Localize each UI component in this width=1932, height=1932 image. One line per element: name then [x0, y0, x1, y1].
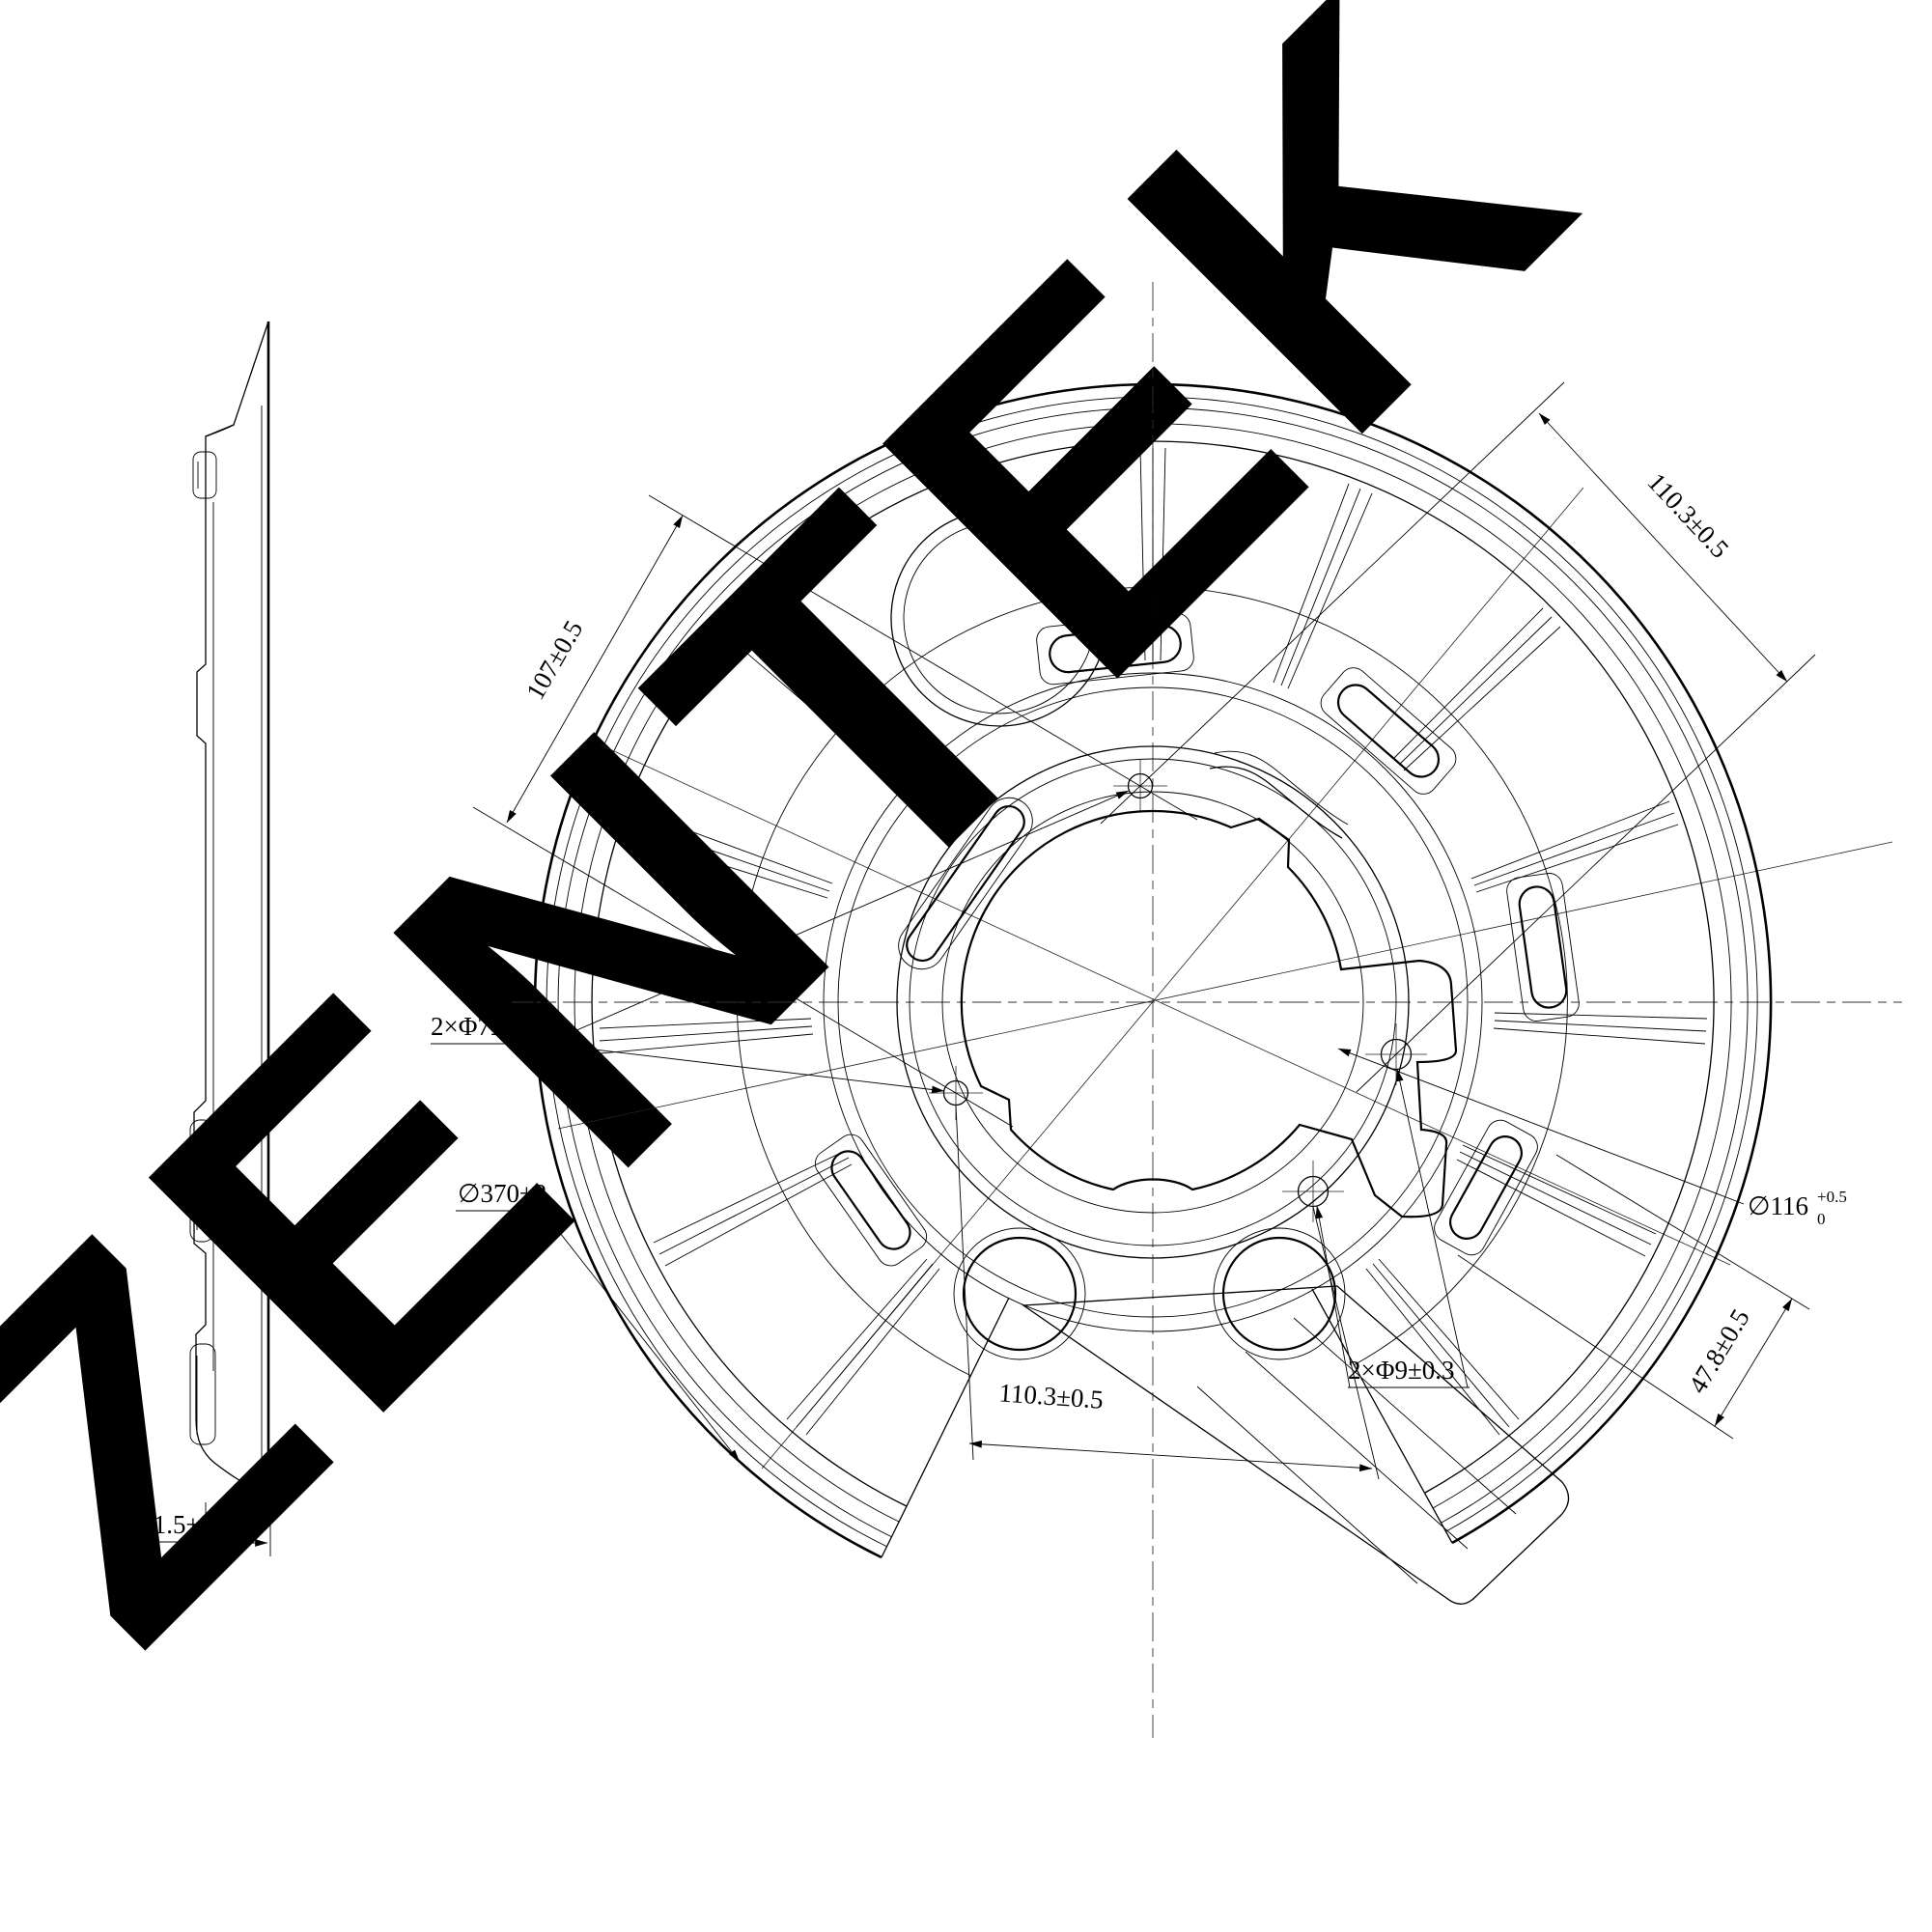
pad-bottom-left	[810, 1130, 932, 1272]
bottom-cutout	[882, 1286, 1569, 1604]
technical-drawing-canvas: ZENTEK	[0, 0, 1932, 1932]
bottom-round-holes	[954, 1228, 1345, 1359]
folded-tab	[1023, 1286, 1569, 1604]
dim-label-116-tol-lower: 0	[1817, 1210, 1826, 1228]
dim-label-2x7: 2×Φ7±0.2	[431, 1012, 538, 1041]
dim-label-2x9: 2×Φ9±0.3	[1348, 1356, 1455, 1385]
dim-label-478: 47.8±0.5	[1683, 1304, 1755, 1399]
technical-drawing-page: ZENTEK	[0, 0, 1932, 1932]
watermark-text: ZENTEK	[0, 0, 1675, 1733]
pad-top-right	[1315, 662, 1461, 799]
dim-label-116-tol-upper: +0.5	[1817, 1188, 1847, 1206]
dim-label-110-top: 110.3±0.5	[1642, 467, 1735, 564]
dim-label-370: ∅370±2	[458, 1179, 546, 1208]
clip-top	[193, 452, 216, 498]
watermark: ZENTEK	[0, 0, 1675, 1733]
platform-s-curve-2	[1215, 751, 1348, 825]
dim-label-116: ∅116	[1748, 1191, 1808, 1220]
side-top-edge	[206, 322, 268, 436]
pad-bottom-right	[1430, 1115, 1543, 1260]
pad-right	[1505, 872, 1581, 1023]
dim-label-215: 21.5±2	[140, 1510, 213, 1539]
dim-label-110-bottom: 110.3±0.5	[998, 1378, 1105, 1414]
